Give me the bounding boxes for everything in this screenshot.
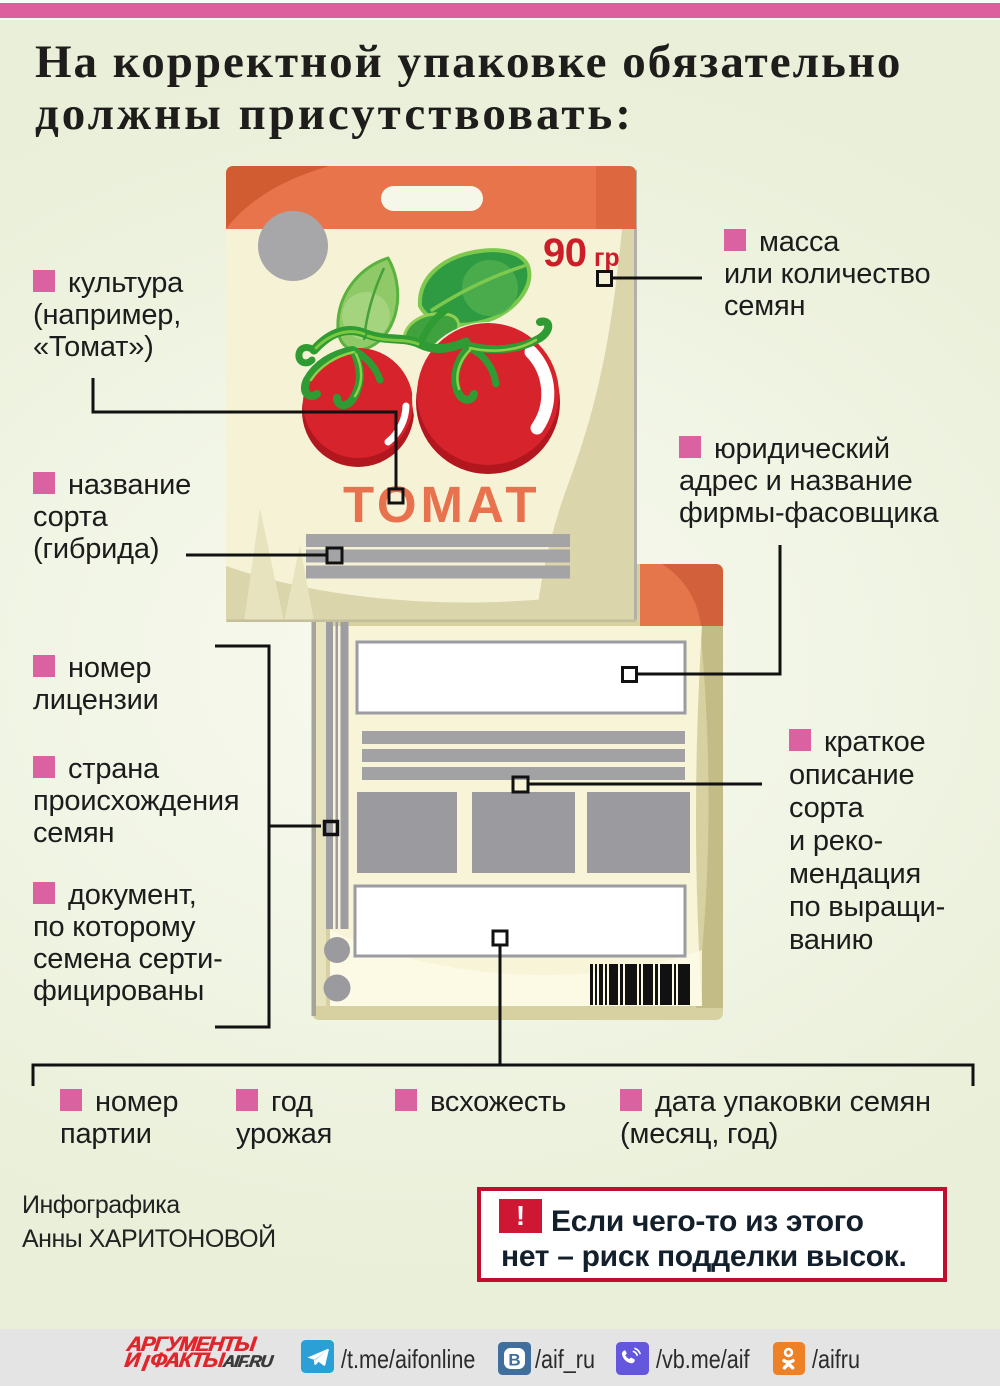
svg-text:гр: гр	[594, 244, 620, 272]
svg-text:ТОМАТ: ТОМАТ	[343, 476, 540, 533]
svg-text:90: 90	[543, 231, 587, 275]
svg-text:В: В	[508, 1351, 520, 1370]
